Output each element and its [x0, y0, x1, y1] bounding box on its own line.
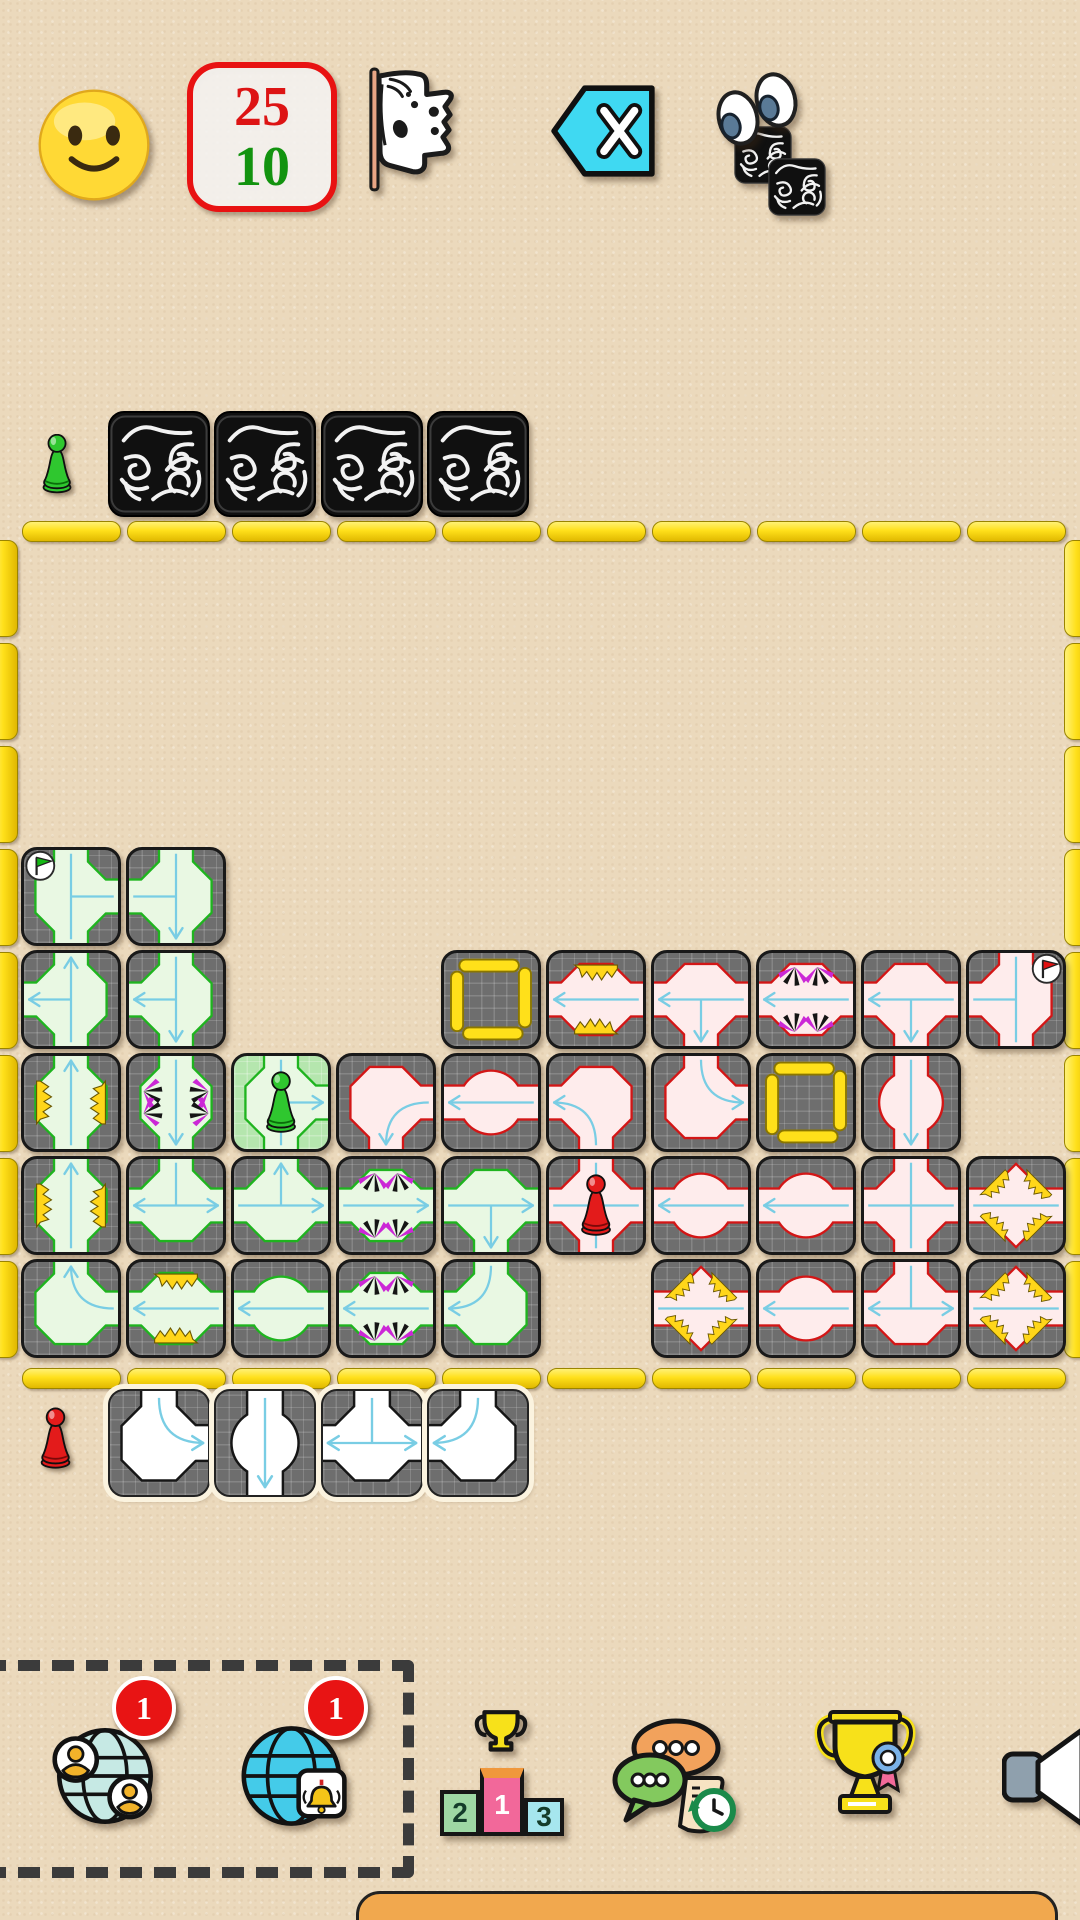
undo-button[interactable]: [548, 84, 660, 178]
podium-trophy-icon: [466, 1706, 536, 1764]
board-border-segment: [1064, 849, 1080, 946]
online-games-badge: 1: [304, 1676, 368, 1740]
board-tile-r5c3: [336, 1053, 436, 1152]
score-display: 25 10: [187, 62, 337, 212]
red-hand-tile-4[interactable]: [427, 1389, 529, 1497]
board-tile-r4c6: [651, 950, 751, 1049]
board-border-segment: [1064, 952, 1080, 1049]
red-hand-tile-1[interactable]: [108, 1389, 210, 1497]
board-tile-r7c7: [756, 1259, 856, 1358]
board-tile-r6c3: [336, 1156, 436, 1255]
board-border-segment: [1064, 540, 1080, 637]
board-border-segment: [442, 521, 541, 542]
board-border-segment: [967, 1368, 1066, 1389]
board-tile-r5c2: [231, 1053, 331, 1152]
board-tile-r7c1: [126, 1259, 226, 1358]
achievements-trophy-button[interactable]: [810, 1706, 920, 1842]
board-tile-r5c4: [441, 1053, 541, 1152]
board-tile-r4c5: [546, 950, 646, 1049]
board-border-segment: [1064, 746, 1080, 843]
board-tile-r4c1: [126, 950, 226, 1049]
green-hand-tile-facedown-2: [214, 411, 316, 517]
board-border-segment: [0, 952, 18, 1049]
board-border-segment: [1064, 1261, 1080, 1358]
board-border-segment: [652, 521, 751, 542]
placement-slot-r5c7[interactable]: [756, 1053, 856, 1152]
board-border-segment: [337, 521, 436, 542]
red-hand-tile-2[interactable]: [214, 1389, 316, 1497]
board-tile-r7c8: [861, 1259, 961, 1358]
podium-first: 1: [480, 1768, 524, 1836]
placement-slot-r4c4[interactable]: [441, 950, 541, 1049]
board-border-segment: [862, 1368, 961, 1389]
online-players-badge: 1: [112, 1676, 176, 1740]
board-border-segment: [0, 1055, 18, 1152]
green-pawn: [39, 434, 75, 494]
board-tile-r6c0: [21, 1156, 121, 1255]
board-tile-r3c0: [21, 847, 121, 946]
board-tile-r7c6: [651, 1259, 751, 1358]
board-border-segment: [757, 521, 856, 542]
board-border-segment: [22, 521, 121, 542]
bottom-drawer-handle[interactable]: [356, 1891, 1058, 1920]
board-tile-r7c0: [21, 1259, 121, 1358]
board-tile-r4c8: [861, 950, 961, 1049]
red-pawn: [37, 1407, 74, 1470]
game-screen: 25 10: [0, 0, 1080, 1920]
board-tile-r7c3: [336, 1259, 436, 1358]
board-tile-r6c7: [756, 1156, 856, 1255]
podium-third: 3: [524, 1798, 564, 1836]
board-tile-r5c5: [546, 1053, 646, 1152]
board-tile-r7c9: [966, 1259, 1066, 1358]
board-border-segment: [232, 1368, 331, 1389]
board-border-segment: [0, 1261, 18, 1358]
board-tile-r4c9: [966, 950, 1066, 1049]
board-tile-r6c6: [651, 1156, 751, 1255]
board-tile-r6c2: [231, 1156, 331, 1255]
board-border-segment: [232, 521, 331, 542]
board-tile-r7c2: [231, 1259, 331, 1358]
chat-history-button[interactable]: [612, 1712, 748, 1842]
surrender-flag-button[interactable]: [350, 64, 475, 196]
board-tile-r3c1: [126, 847, 226, 946]
board-border-segment: [862, 521, 961, 542]
board-tile-r6c9: [966, 1156, 1066, 1255]
board-tile-r7c4: [441, 1259, 541, 1358]
facedown-tile-icon: [768, 158, 826, 216]
status-smiley-icon: [35, 86, 153, 204]
podium-second: 2: [440, 1790, 480, 1836]
red-hand-tile-3[interactable]: [321, 1389, 423, 1497]
board-border-segment: [967, 521, 1066, 542]
board-border-segment: [0, 746, 18, 843]
board-border-segment: [127, 1368, 226, 1389]
board-tile-r6c1: [126, 1156, 226, 1255]
board-tile-r6c8: [861, 1156, 961, 1255]
peek-eyes-button[interactable]: [708, 66, 812, 156]
green-hand-tile-facedown-4: [427, 411, 529, 517]
board-tile-r5c1: [126, 1053, 226, 1152]
board-tile-r4c0: [21, 950, 121, 1049]
board-border-segment: [1064, 1158, 1080, 1255]
board-border-segment: [442, 1368, 541, 1389]
sound-button[interactable]: [1002, 1722, 1080, 1832]
green-hand-tile-facedown-3: [321, 411, 423, 517]
board-tile-r6c4: [441, 1156, 541, 1255]
score-top-value: 25: [234, 77, 290, 137]
leaderboard-button[interactable]: 2 1 3: [438, 1706, 564, 1836]
board-tile-r6c5: [546, 1156, 646, 1255]
board-border-segment: [0, 1158, 18, 1255]
board-border-segment: [0, 643, 18, 740]
board-border-segment: [337, 1368, 436, 1389]
board-tile-r5c8: [861, 1053, 961, 1152]
board-border-segment: [0, 540, 18, 637]
online-games-button[interactable]: 1: [228, 1712, 362, 1840]
board-tile-r5c0: [21, 1053, 121, 1152]
green-hand-tile-facedown-1: [108, 411, 210, 517]
board-border-segment: [127, 521, 226, 542]
score-bottom-value: 10: [234, 137, 290, 197]
board-border-segment: [1064, 643, 1080, 740]
board-tile-r4c7: [756, 950, 856, 1049]
board-border-segment: [22, 1368, 121, 1389]
board-border-segment: [1064, 1055, 1080, 1152]
board-border-segment: [0, 849, 18, 946]
board-border-segment: [652, 1368, 751, 1389]
board-tile-r5c6: [651, 1053, 751, 1152]
board-border-segment: [547, 521, 646, 542]
board-border-segment: [547, 1368, 646, 1389]
board-border-segment: [757, 1368, 856, 1389]
online-players-button[interactable]: 1: [38, 1712, 172, 1840]
